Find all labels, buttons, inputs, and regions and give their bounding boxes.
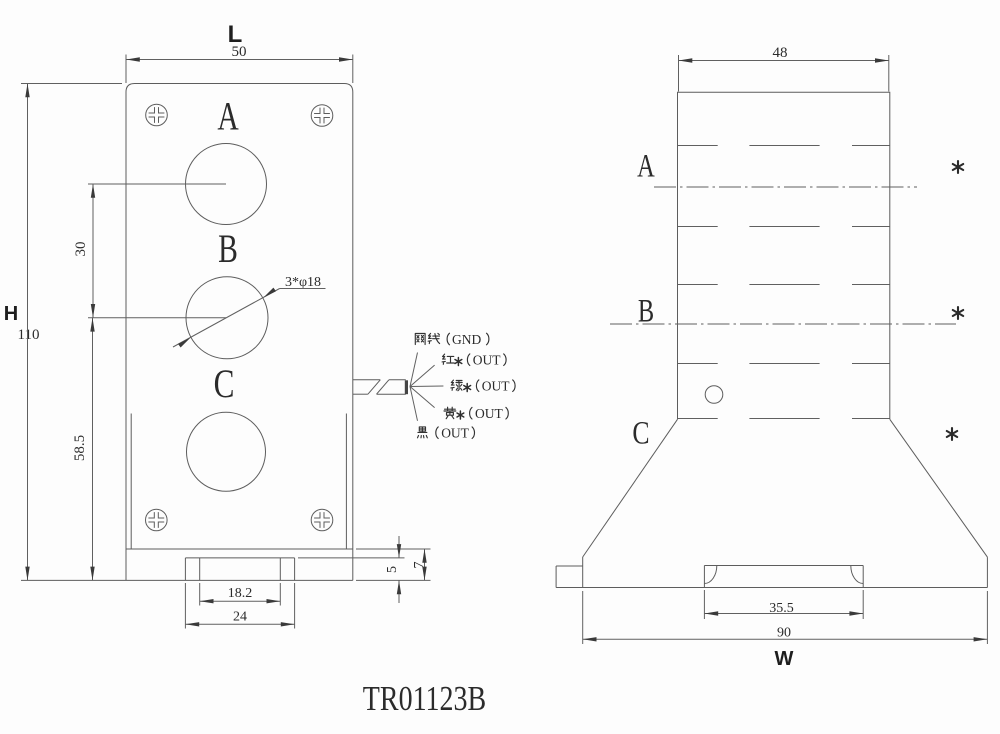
svg-text:OUT: OUT (475, 406, 503, 421)
svg-text:A: A (637, 148, 655, 184)
svg-text:B: B (638, 293, 654, 329)
svg-text:TR01123B: TR01123B (363, 679, 486, 718)
svg-text:90: 90 (777, 626, 791, 641)
svg-text:OUT: OUT (473, 353, 501, 368)
svg-text:GND: GND (452, 332, 481, 347)
svg-text:30: 30 (73, 242, 89, 257)
svg-text:OUT: OUT (441, 426, 469, 441)
svg-text:110: 110 (18, 327, 40, 343)
svg-text:5: 5 (385, 566, 400, 573)
svg-text:C: C (632, 416, 649, 452)
svg-text:24: 24 (233, 610, 247, 625)
svg-text:B: B (218, 227, 238, 271)
svg-text:50: 50 (232, 44, 247, 60)
svg-text:58.5: 58.5 (72, 435, 88, 461)
svg-text:C: C (214, 361, 235, 406)
svg-text:OUT: OUT (482, 379, 510, 394)
svg-text:3*φ18: 3*φ18 (285, 275, 321, 290)
svg-text:W: W (775, 648, 794, 670)
svg-text:A: A (217, 94, 239, 138)
svg-text:18.2: 18.2 (228, 586, 253, 601)
svg-text:H: H (4, 303, 18, 325)
svg-text:48: 48 (773, 45, 788, 61)
